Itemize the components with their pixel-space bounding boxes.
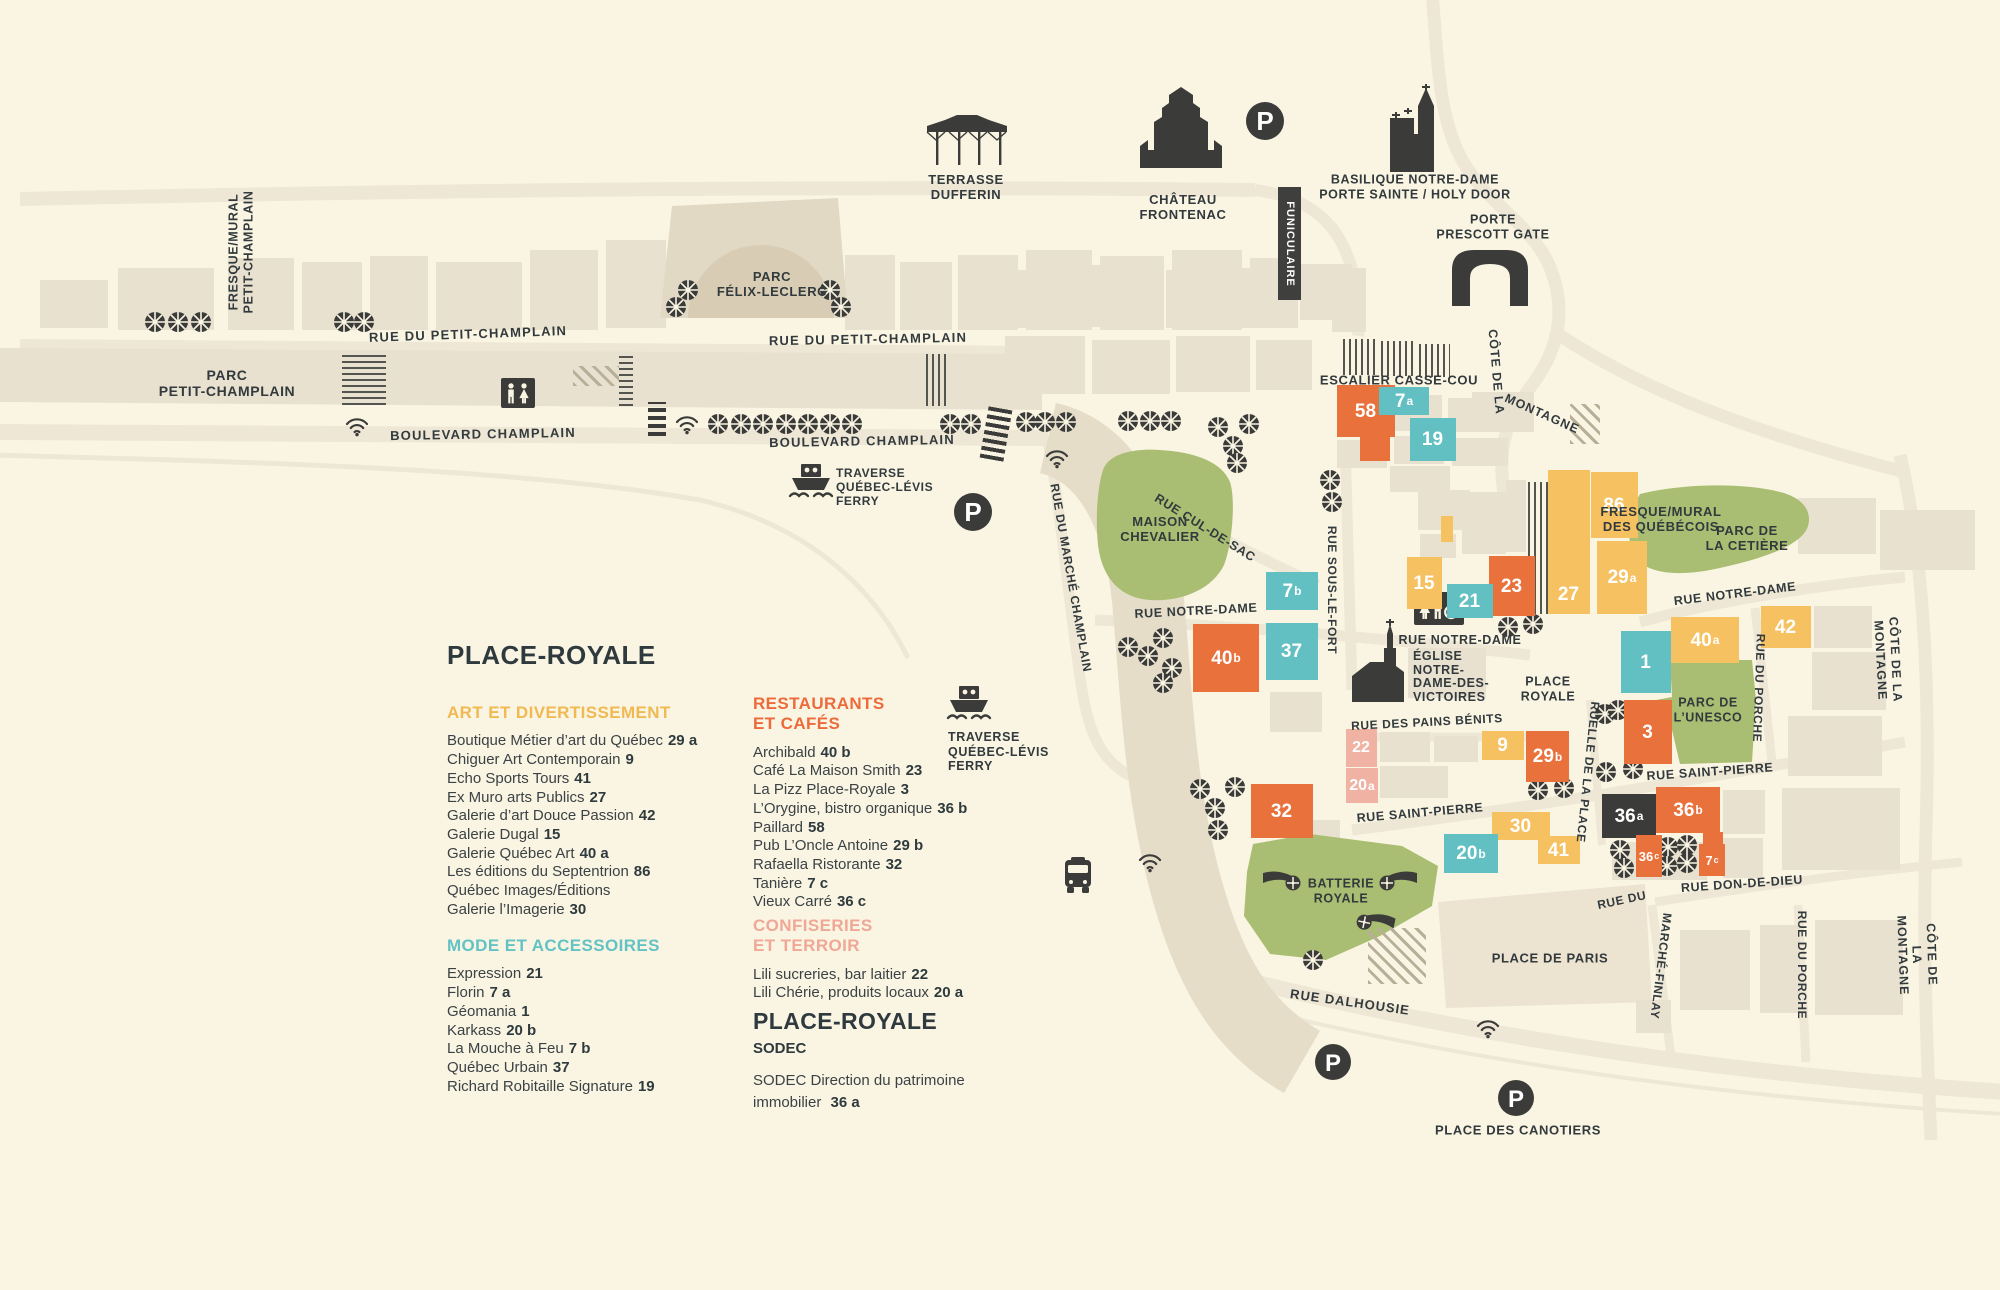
- legend-item: Pub L’Oncle Antoine29 b: [753, 837, 967, 856]
- chateau-frontenac-icon: [1140, 87, 1222, 168]
- legend-item-name: Boutique Métier d’art du Québec: [447, 732, 663, 749]
- map-block-3: 3: [1624, 700, 1672, 764]
- legend-item: Lili sucreries, bar laitier22: [753, 966, 963, 985]
- legend-item-name: Archibald: [753, 744, 816, 761]
- legend-item-name: Lili Chérie, produits locaux: [753, 984, 929, 1001]
- legend-title: PLACE-ROYALE: [447, 640, 656, 671]
- legend-item: Tanière7 c: [753, 875, 967, 894]
- toilets-icon: [501, 378, 535, 408]
- legend-item-number: 9: [625, 751, 633, 768]
- legend-item: Florin7 a: [447, 984, 660, 1003]
- legend-item: La Mouche à Feu7 b: [447, 1040, 660, 1059]
- parc-felix-leclerc-label: PARC FÉLIX-LECLERC: [717, 269, 827, 299]
- place-de-paris-label: PLACE DE PARIS: [1492, 950, 1609, 965]
- legend-section-sodec: PLACE-ROYALE SODEC SODEC Direction du pa…: [753, 1008, 991, 1114]
- parc-de-la-cetiere-label: PARC DE LA CETIÈRE: [1706, 523, 1789, 553]
- map-block-15: 15: [1407, 557, 1442, 609]
- batterie-royale-label: BATTERIE ROYALE: [1308, 877, 1374, 906]
- legend-item: Karkass20 b: [447, 1022, 660, 1041]
- fresque-petit-champlain-label: FRESQUE/MURAL PETIT-CHAMPLAIN: [227, 191, 256, 314]
- legend-item-name: Tanière: [753, 875, 802, 892]
- legend-item-name: Pub L’Oncle Antoine: [753, 837, 888, 854]
- legend-item: Paillard58: [753, 819, 967, 838]
- legend-item: La Pizz Place-Royale3: [753, 781, 967, 800]
- porte-prescott-gate-icon: [1452, 250, 1528, 306]
- legend-item-name: Galerie l’Imagerie: [447, 901, 565, 918]
- legend-item-name: Chiguer Art Contemporain: [447, 751, 620, 768]
- street-cote-de-la-montagne: CÔTE DE LA MONTAGNE: [1894, 913, 1940, 997]
- legend-item-number: 20 a: [934, 984, 963, 1001]
- escalier-casse-cou-label: ESCALIER CASSE-COU: [1320, 372, 1478, 387]
- legend-section-art: ART ET DIVERTISSEMENT Boutique Métier d’…: [447, 703, 697, 919]
- legend-item-name: Les éditions du Septentrion: [447, 863, 629, 880]
- legend-item-name: Québec Images/Éditions: [447, 882, 610, 899]
- legend-item: Québec Urbain37: [447, 1059, 660, 1078]
- legend-item-name: Florin: [447, 984, 485, 1001]
- legend-item: Vieux Carré36 c: [753, 893, 967, 912]
- street-rue-sous-le-fort: RUE SOUS-LE-FORT: [1324, 526, 1338, 654]
- map-block-36b: 36b: [1656, 787, 1720, 833]
- eglise-notre-dame-des-victoires-label: ÉGLISE NOTRE- DAME-DES- VICTOIRES: [1413, 650, 1489, 704]
- map-block-58-annex: [1360, 437, 1390, 461]
- legend-item: Géomania1: [447, 1003, 660, 1022]
- map-block-7c: 7c: [1699, 844, 1725, 876]
- parc-petit-champlain-label: PARC PETIT-CHAMPLAIN: [159, 367, 296, 399]
- legend-item: Rafaella Ristorante32: [753, 856, 967, 875]
- legend-item-number: 19: [638, 1078, 655, 1095]
- terrasse-dufferin-icon: [927, 115, 1007, 165]
- legend-item-name: Karkass: [447, 1022, 501, 1039]
- street-rue-notre-dame: RUE NOTRE-DAME: [1399, 633, 1522, 648]
- legend-item: Québec Images/Éditions: [447, 882, 697, 901]
- map-block-42: 42: [1761, 606, 1811, 648]
- traverse-ferry-label: TRAVERSE QUÉBEC-LÉVIS FERRY: [836, 467, 933, 509]
- legend-item-number: 41: [574, 770, 591, 787]
- fresque-des-quebecois-label: FRESQUE/MURAL DES QUÉBÉCOIS: [1600, 504, 1721, 534]
- street-rue-du-porche: RUE DU PORCHE: [1794, 911, 1808, 1019]
- map-block-9: 9: [1482, 731, 1524, 760]
- stairs: [342, 351, 386, 405]
- escalier-stairs: [1343, 339, 1375, 375]
- svg-text:P: P: [1256, 106, 1273, 136]
- legend-item-name: Québec Urbain: [447, 1059, 548, 1076]
- legend-item-number: 30: [570, 901, 587, 918]
- legend-item: Chiguer Art Contemporain9: [447, 751, 697, 770]
- legend-item-number: 7 c: [807, 875, 828, 892]
- map-block-19: 19: [1410, 418, 1456, 461]
- svg-text:P: P: [1325, 1050, 1341, 1077]
- stairs: [648, 402, 666, 436]
- terrasse-dufferin-label: TERRASSE DUFFERIN: [928, 172, 1004, 202]
- legend-item-number: 29 a: [668, 732, 697, 749]
- legend-item-number: 40 b: [821, 744, 851, 761]
- map-block-32: 32: [1251, 784, 1313, 838]
- legend-item-name: Expression: [447, 965, 521, 982]
- legend-item: Lili Chérie, produits locaux20 a: [753, 984, 963, 1003]
- legend-item-number: 37: [553, 1059, 570, 1076]
- legend-list-restaurants: Archibald40 bCafé La Maison Smith23La Pi…: [753, 744, 967, 912]
- legend-section-restaurants: RESTAURANTS ET CAFÉS Archibald40 bCafé L…: [753, 694, 967, 912]
- legend-item-number: 36 c: [837, 893, 866, 910]
- legend-item-name: Echo Sports Tours: [447, 770, 569, 787]
- legend-section-title: MODE ET ACCESSOIRES: [447, 936, 660, 956]
- legend-item-name: Géomania: [447, 1003, 516, 1020]
- legend-item-name: Richard Robitaille Signature: [447, 1078, 633, 1095]
- map-block-22: 22: [1346, 729, 1377, 767]
- legend-item-number: 15: [544, 826, 561, 843]
- map-block-21: 21: [1447, 584, 1493, 618]
- legend-item: Galerie l’Imagerie30: [447, 901, 697, 920]
- legend-item-number: 40 a: [580, 845, 609, 862]
- legend-item-number: 20 b: [506, 1022, 536, 1039]
- map-block-20a: 20a: [1346, 768, 1378, 803]
- legend-item: Les éditions du Septentrion86: [447, 863, 697, 882]
- legend-item: Boutique Métier d’art du Québec29 a: [447, 732, 697, 751]
- place-royale-map: P P P P FUNICULAIRE 58 7a 19 86 27: [0, 0, 2000, 1290]
- legend-item: Echo Sports Tours41: [447, 770, 697, 789]
- place-royale-label: PLACE ROYALE: [1521, 675, 1576, 704]
- legend-item: Café La Maison Smith23: [753, 762, 967, 781]
- map-block-36a: 36a: [1602, 794, 1656, 838]
- maison-chevalier-label: MAISON CHEVALIER: [1120, 514, 1200, 544]
- legend-section-mode: MODE ET ACCESSOIRES Expression21Florin7 …: [447, 936, 660, 1096]
- legend-item: Galerie Québec Art40 a: [447, 845, 697, 864]
- legend-list-confiseries: Lili sucreries, bar laitier22Lili Chérie…: [753, 966, 963, 1003]
- legend-item-name: Vieux Carré: [753, 893, 832, 910]
- map-block-27: 27: [1548, 470, 1590, 614]
- legend-item-number: 22: [911, 966, 928, 983]
- map-block-23: 23: [1489, 556, 1535, 616]
- map-block-37: 37: [1266, 623, 1318, 680]
- legend-item: Galerie d’art Douce Passion42: [447, 807, 697, 826]
- legend-item-number: 58: [808, 819, 825, 836]
- legend-item: Archibald40 b: [753, 744, 967, 763]
- legend-item-number: 7 b: [569, 1040, 591, 1057]
- map-block-36c: 36c: [1636, 835, 1662, 877]
- svg-text:P: P: [1508, 1086, 1524, 1113]
- parc-de-l-unesco-label: PARC DE L’UNESCO: [1674, 696, 1743, 725]
- place-des-canotiers-label: PLACE DES CANOTIERS: [1435, 1122, 1601, 1137]
- legend-item-number: 42: [639, 807, 656, 824]
- funiculaire-station: FUNICULAIRE: [1278, 187, 1301, 300]
- legend-section-title: ART ET DIVERTISSEMENT: [447, 703, 697, 723]
- eglise-notre-dame-des-victoires-icon: [1352, 619, 1404, 702]
- legend-list-mode: Expression21Florin7 aGéomania1Karkass20 …: [447, 965, 660, 1096]
- sodec-org: SODEC: [753, 1040, 991, 1057]
- legend-item-number: 21: [526, 965, 543, 982]
- chateau-frontenac-label: CHÂTEAU FRONTENAC: [1139, 192, 1226, 222]
- legend-item: Expression21: [447, 965, 660, 984]
- legend-item: Galerie Dugal15: [447, 826, 697, 845]
- legend-item: Richard Robitaille Signature19: [447, 1078, 660, 1097]
- legend-section-confiseries: CONFISERIES ET TERROIR Lili sucreries, b…: [753, 916, 963, 1003]
- legend-item-name: Rafaella Ristorante: [753, 856, 881, 873]
- map-block-7a: 7a: [1379, 387, 1429, 415]
- map-block-7b: 7b: [1266, 572, 1318, 610]
- map-block-40a: 40a: [1671, 617, 1739, 663]
- funiculaire-label: FUNICULAIRE: [1284, 201, 1296, 287]
- legend-item-name: Galerie Dugal: [447, 826, 539, 843]
- basilique-notre-dame-icon: [1390, 84, 1434, 172]
- legend-item-name: Galerie d’art Douce Passion: [447, 807, 634, 824]
- basilique-label: BASILIQUE NOTRE-DAME PORTE SAINTE / HOLY…: [1319, 173, 1511, 202]
- ramp: [573, 366, 619, 386]
- map-block-29a: 29a: [1597, 541, 1647, 614]
- legend-list-art: Boutique Métier d’art du Québec29 aChigu…: [447, 732, 697, 919]
- legend-item-name: Ex Muro arts Publics: [447, 789, 585, 806]
- legend-item-name: La Mouche à Feu: [447, 1040, 564, 1057]
- legend-item-name: L’Orygine, bistro organique: [753, 800, 932, 817]
- legend-item-name: La Pizz Place-Royale: [753, 781, 896, 798]
- sodec-body: SODEC Direction du patrimoine immobilier…: [753, 1070, 991, 1114]
- legend-item-name: Café La Maison Smith: [753, 762, 901, 779]
- legend-item-number: 86: [634, 863, 651, 880]
- street-cote-de-la-montagne: CÔTE DE LA MONTAGNE: [1871, 603, 1906, 716]
- stairs: [619, 352, 633, 406]
- legend-item-number: 32: [886, 856, 903, 873]
- legend-item-name: Lili sucreries, bar laitier: [753, 966, 906, 983]
- legend-item-number: 3: [901, 781, 909, 798]
- legend-item-number: 36 b: [937, 800, 967, 817]
- ferry-icon: [790, 464, 832, 496]
- legend-item-number: 23: [906, 762, 923, 779]
- svg-text:P: P: [964, 497, 981, 527]
- legend-item: L’Orygine, bistro organique36 b: [753, 800, 967, 819]
- legend-item-name: Paillard: [753, 819, 803, 836]
- batterie-stairs: [1368, 928, 1426, 984]
- map-block-29b: 29b: [1526, 731, 1569, 782]
- legend-item-number: 27: [590, 789, 607, 806]
- legend-item-number: 29 b: [893, 837, 923, 854]
- map-block-40b: 40b: [1193, 624, 1259, 692]
- legend-section-title: RESTAURANTS ET CAFÉS: [753, 694, 967, 735]
- porte-prescott-label: PORTE PRESCOTT GATE: [1436, 213, 1549, 242]
- legend-item-number: 1: [521, 1003, 529, 1020]
- escalier-stairs: [1381, 341, 1413, 376]
- legend-item-name: Galerie Québec Art: [447, 845, 575, 862]
- street-rue-du-porche: RUE DU PORCHE: [1749, 634, 1767, 743]
- sodec-title: PLACE-ROYALE: [753, 1008, 991, 1035]
- map-block-20b: 20b: [1444, 834, 1498, 873]
- stairs: [926, 354, 950, 406]
- bus-stop-icon: [1065, 857, 1091, 893]
- legend-section-title: CONFISERIES ET TERROIR: [753, 916, 963, 957]
- map-block-1: 1: [1621, 631, 1671, 693]
- legend-item: Ex Muro arts Publics27: [447, 789, 697, 808]
- legend-item-number: 7 a: [490, 984, 511, 1001]
